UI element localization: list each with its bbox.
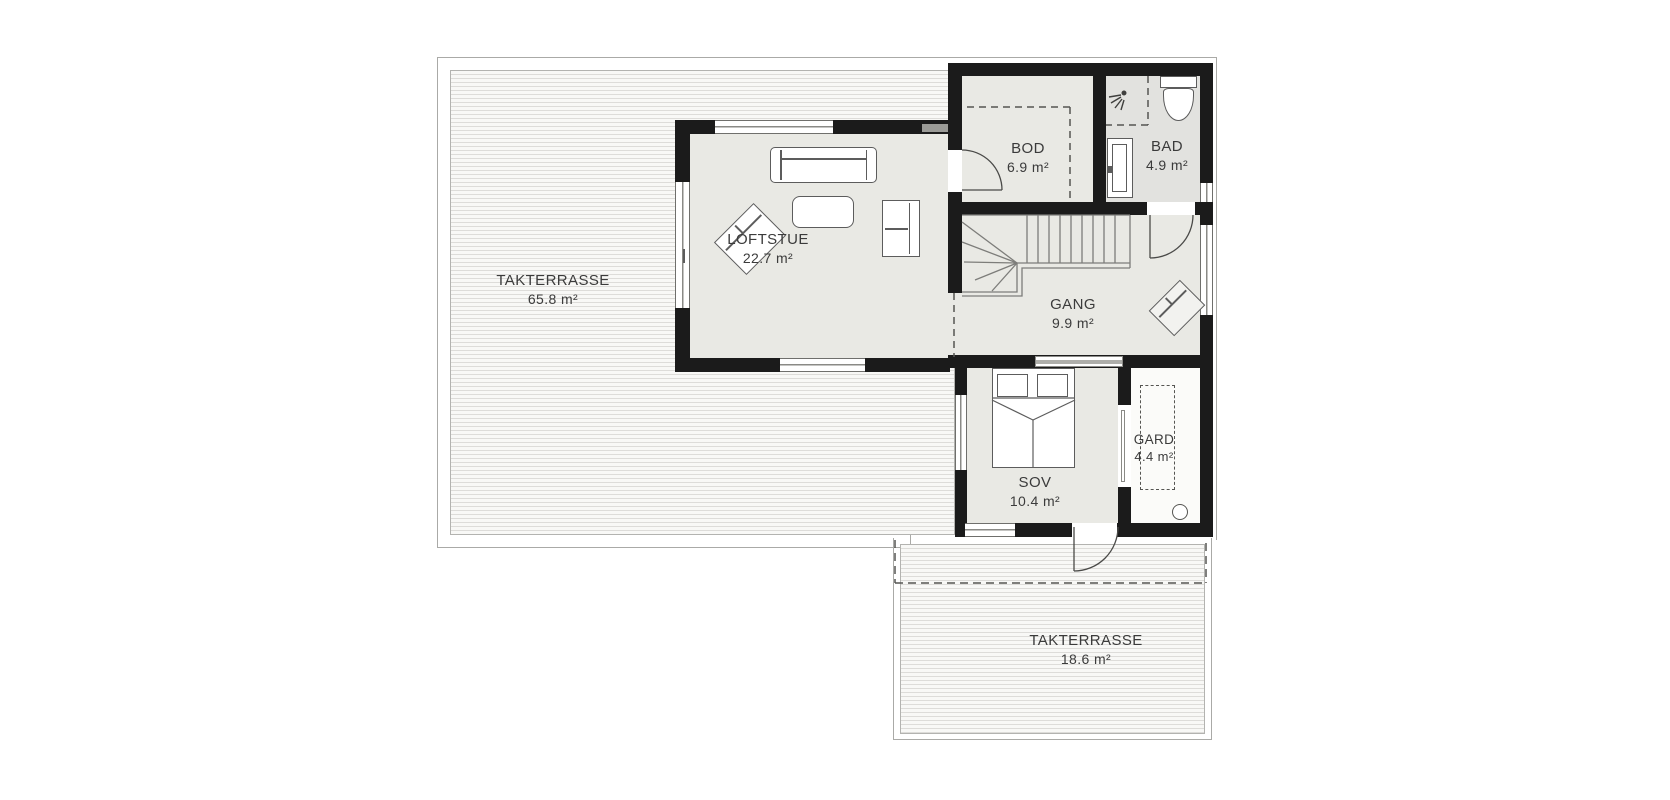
- sofa-arm-left: [780, 150, 782, 180]
- double-bed: [992, 368, 1075, 468]
- room-name: TAKTERRASSE: [443, 272, 663, 291]
- door-gap-terrace: [1072, 523, 1117, 537]
- room-area: 65.8 m²: [443, 291, 663, 309]
- room-area: 18.6 m²: [976, 651, 1196, 669]
- label-takterrasse-small: TAKTERRASSE 18.6 m²: [976, 632, 1196, 668]
- sliding-door-sov: [1035, 356, 1123, 367]
- room-name: LOFTSTUE: [688, 231, 848, 250]
- room-bod: [962, 76, 1093, 202]
- room-name: GARD: [1119, 432, 1189, 449]
- room-area: 4.4 m²: [1119, 449, 1189, 465]
- room-area: 22.7 m²: [688, 250, 848, 268]
- armchair-seat-line: [885, 228, 908, 230]
- label-sov: SOV 10.4 m²: [975, 474, 1095, 510]
- room-name: BOD: [968, 140, 1088, 159]
- wall-divider-upper: [948, 63, 962, 150]
- terrace-border-bottom: [437, 547, 911, 548]
- entry-arrow-marker: [683, 249, 685, 263]
- label-gard: GARD 4.4 m²: [1119, 432, 1189, 465]
- wall-gang-top-left: [948, 202, 1147, 215]
- window-sov-left: [955, 395, 967, 470]
- label-bod: BOD 6.9 m²: [968, 140, 1088, 176]
- sofa-arm-right: [866, 150, 868, 180]
- window-sov-bottom: [965, 523, 1015, 537]
- terrace2-border-right: [1211, 538, 1212, 740]
- sink-faucet: [1108, 166, 1113, 173]
- room-name: SOV: [975, 474, 1095, 493]
- wall-bod-bad-divider: [1093, 63, 1106, 202]
- room-name: BAD: [1127, 138, 1207, 157]
- room-name: GANG: [1013, 296, 1133, 315]
- roof-edge-line: [1216, 57, 1217, 540]
- room-area: 6.9 m²: [968, 159, 1088, 177]
- window-loftstue-bottom: [780, 358, 865, 372]
- sofa: [770, 147, 877, 183]
- floor-plan: TAKTERRASSE 65.8 m² LOFTSTUE 22.7 m² BOD…: [0, 0, 1670, 800]
- window-loftstue-top: [715, 120, 833, 134]
- gang-loftstue-opening: [948, 293, 962, 358]
- room-area: 4.9 m²: [1127, 157, 1207, 175]
- terrace-border-top: [437, 57, 1217, 58]
- armchair: [882, 200, 920, 257]
- door-gap-bad: [1147, 202, 1195, 215]
- armchair-back-line: [909, 203, 911, 254]
- door-gap-bod: [948, 150, 962, 192]
- room-area: 9.9 m²: [1013, 315, 1133, 333]
- terrace-border-left: [437, 57, 438, 548]
- room-area: 10.4 m²: [975, 493, 1095, 511]
- sofa-back-line: [780, 158, 867, 160]
- room-gang: [962, 215, 1200, 355]
- window-bad-right: [1200, 183, 1213, 202]
- gang-chair-split-line: [1165, 297, 1172, 304]
- terrace2-border-left: [893, 538, 894, 740]
- sink-basin: [1112, 144, 1127, 192]
- label-gang: GANG 9.9 m²: [1013, 296, 1133, 332]
- terrace2-border-bottom: [893, 739, 1212, 740]
- bed-pillow-left: [997, 374, 1028, 397]
- coffee-table: [792, 196, 854, 228]
- label-bad: BAD 4.9 m²: [1127, 138, 1207, 174]
- wall-house-top: [948, 63, 1213, 76]
- label-takterrasse-large: TAKTERRASSE 65.8 m²: [443, 272, 663, 308]
- room-name: TAKTERRASSE: [976, 632, 1196, 651]
- label-loftstue: LOFTSTUE 22.7 m²: [688, 231, 848, 267]
- toilet-tank: [1160, 76, 1197, 88]
- ceiling-point: [1172, 504, 1188, 520]
- wall-connector-beam: [922, 124, 948, 132]
- bed-pillow-right: [1037, 374, 1068, 397]
